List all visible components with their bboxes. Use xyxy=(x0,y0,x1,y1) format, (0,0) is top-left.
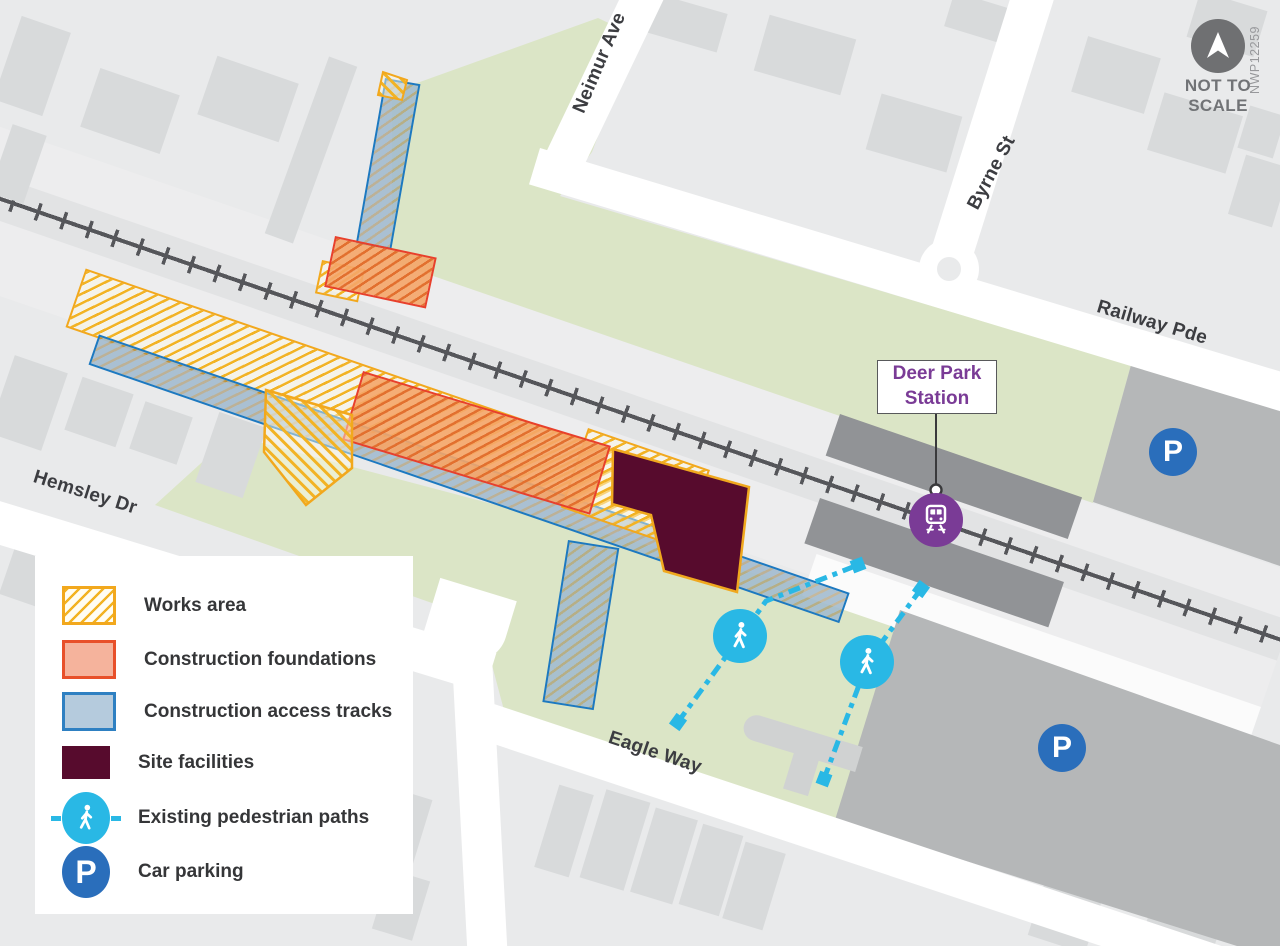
parking-letter: P xyxy=(75,854,96,891)
works-area-swatch xyxy=(62,586,116,625)
legend-label: Construction foundations xyxy=(144,649,376,671)
train-icon xyxy=(918,502,954,538)
legend-item-works: Works area xyxy=(62,586,246,625)
site-facilities xyxy=(612,449,749,592)
car-parking-icon: P xyxy=(1038,724,1086,772)
foundations-swatch xyxy=(62,640,116,679)
legend-label: Construction access tracks xyxy=(144,701,392,723)
legend-label: Car parking xyxy=(138,861,244,883)
legend-item-pedestrian: Existing pedestrian paths xyxy=(62,792,369,844)
construction-map: P P Deer Park Station Hemsley Dr Neimur … xyxy=(0,0,1280,946)
car-parking-icon: P xyxy=(62,846,110,898)
legend-label: Site facilities xyxy=(138,752,254,774)
walking-person-icon xyxy=(850,645,884,679)
car-parking-icon: P xyxy=(1149,428,1197,476)
parking-letter: P xyxy=(1163,435,1183,469)
walking-person-icon xyxy=(70,802,102,834)
works-area-cap xyxy=(378,72,407,100)
station-icon xyxy=(909,493,963,547)
legend-label: Existing pedestrian paths xyxy=(138,807,369,829)
legend-item-access: Construction access tracks xyxy=(62,692,392,731)
legend-item-facilities: Site facilities xyxy=(62,746,254,779)
pedestrian-icon xyxy=(713,609,767,663)
legend-item-parking: P Car parking xyxy=(62,846,244,898)
pedestrian-legend-icon xyxy=(62,792,110,844)
north-arrow-icon xyxy=(1191,19,1245,73)
scale-note: NOT TO SCALE xyxy=(1178,76,1258,115)
legend-panel: Works area Construction foundations Cons… xyxy=(35,556,413,914)
legend-label: Works area xyxy=(144,595,246,617)
station-label-text: Deer Park Station xyxy=(878,362,996,411)
access-tracks-swatch xyxy=(62,692,116,731)
works-area-pentagon xyxy=(264,390,352,505)
pedestrian-icon xyxy=(840,635,894,689)
pedestrian-path-west xyxy=(678,565,858,722)
walking-person-icon xyxy=(723,619,757,653)
parking-letter: P xyxy=(1052,731,1072,765)
pedestrian-icon xyxy=(62,792,110,844)
legend-item-foundations: Construction foundations xyxy=(62,640,376,679)
station-label: Deer Park Station xyxy=(877,360,997,414)
north-arrow-glyph xyxy=(1191,19,1245,73)
parking-legend-icon: P xyxy=(62,846,110,898)
site-facilities-swatch xyxy=(62,746,110,779)
reference-code: NWP12259 xyxy=(1248,26,1262,94)
